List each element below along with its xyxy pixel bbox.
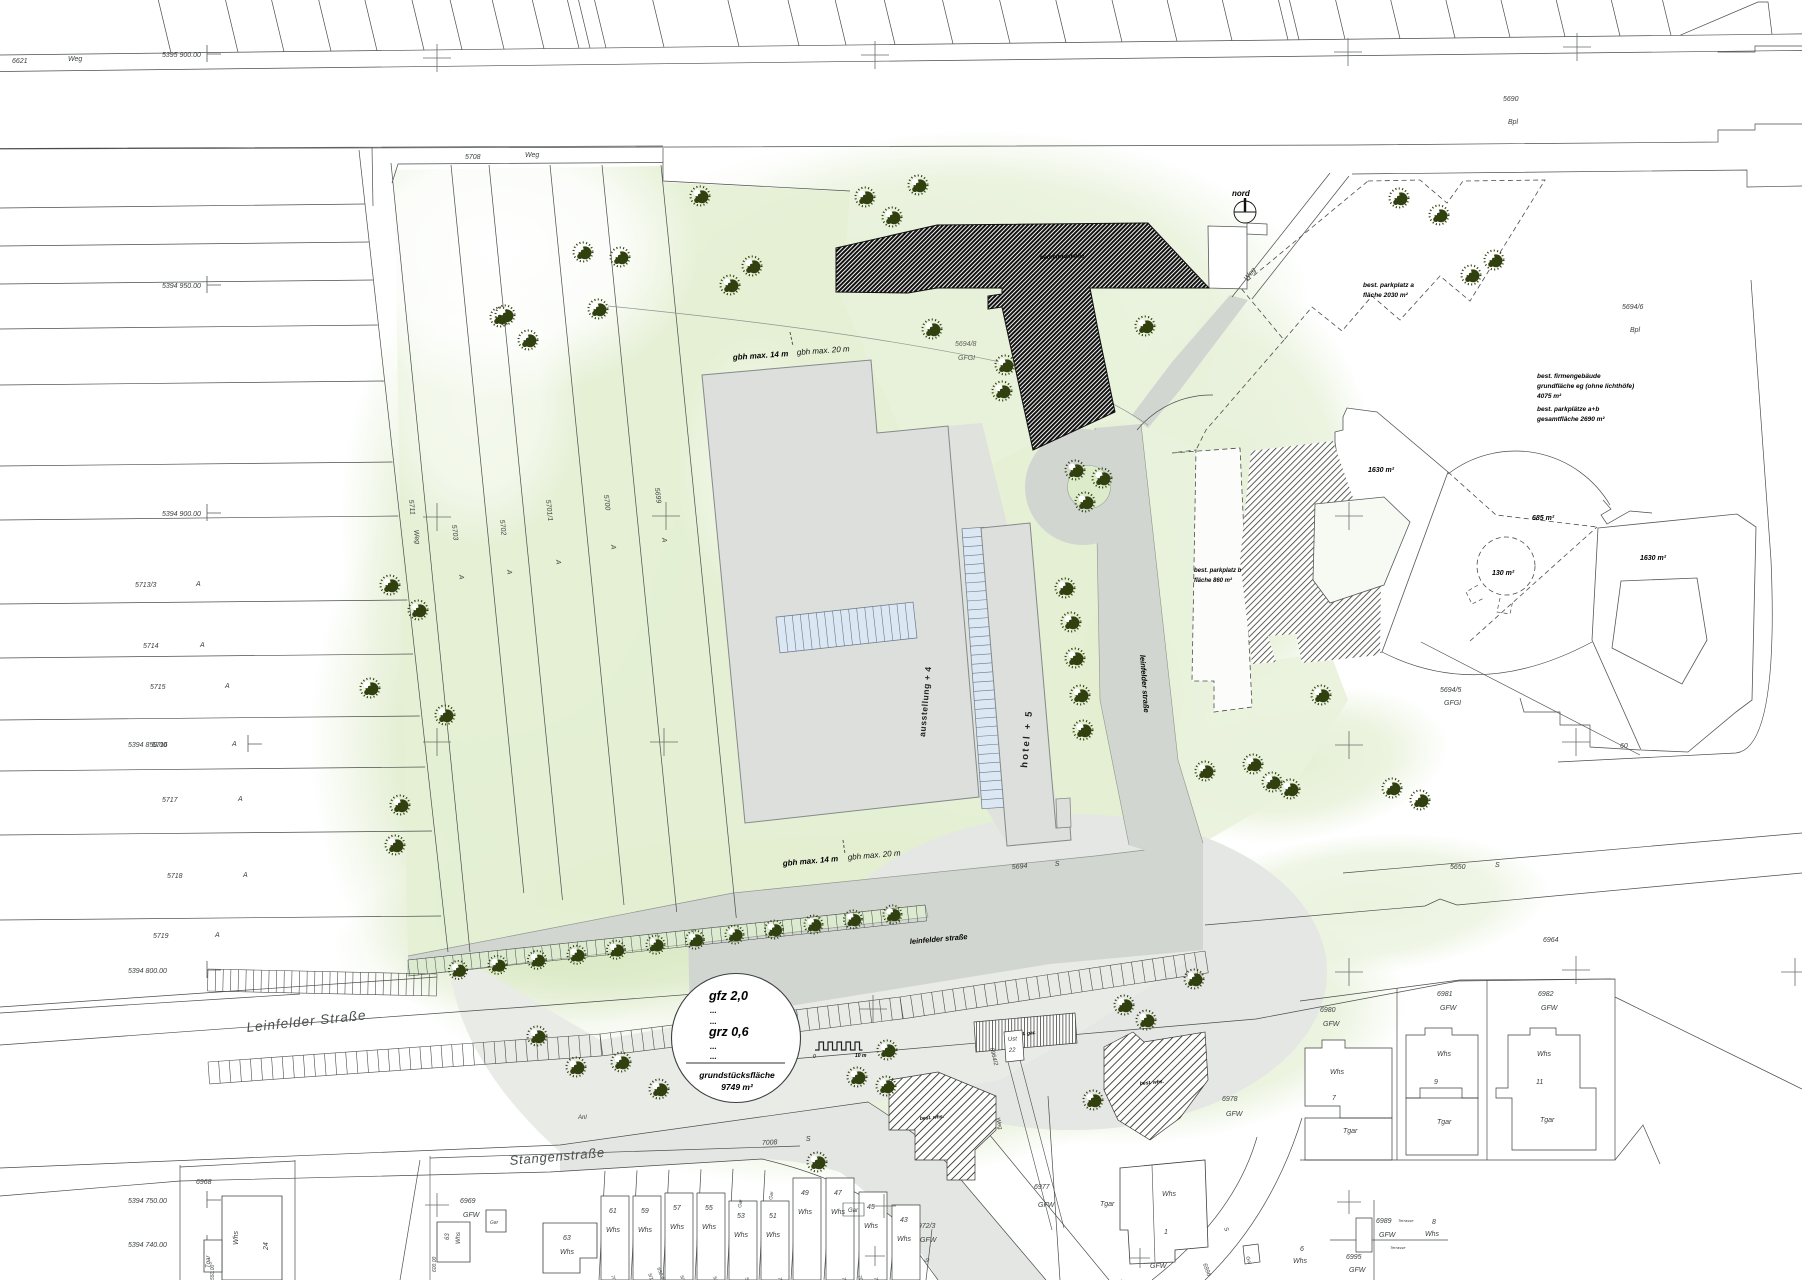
svg-text:grundstücksfläche: grundstücksfläche (698, 1070, 775, 1080)
svg-text:Tgar: Tgar (1343, 1128, 1358, 1135)
svg-text:A: A (195, 581, 201, 588)
svg-text:S: S (806, 1136, 811, 1143)
svg-text:7008: 7008 (762, 1139, 778, 1147)
svg-text:6969: 6969 (460, 1198, 476, 1205)
svg-text:Tgar: Tgar (1540, 1117, 1555, 1124)
svg-text:6982: 6982 (1538, 991, 1554, 998)
svg-text:4075 m²: 4075 m² (1536, 393, 1562, 400)
svg-text:A: A (199, 642, 205, 649)
svg-text:550.00: 550.00 (210, 1264, 216, 1280)
svg-text:1: 1 (1164, 1229, 1168, 1236)
svg-text:GFW: GFW (1349, 1267, 1367, 1274)
svg-text:A: A (554, 558, 562, 565)
svg-text:S: S (1495, 862, 1500, 869)
svg-text:A: A (237, 796, 243, 803)
svg-text:63: 63 (445, 1233, 451, 1240)
svg-text:GFGI: GFGI (958, 355, 975, 362)
svg-text:Whs: Whs (766, 1232, 781, 1239)
svg-text:5694: 5694 (1012, 863, 1028, 871)
svg-text:0: 0 (813, 1054, 816, 1060)
svg-text:Whs: Whs (864, 1223, 879, 1230)
svg-text:A: A (214, 932, 220, 939)
svg-text:GFW: GFW (1541, 1005, 1559, 1012)
svg-text:Anl: Anl (577, 1115, 587, 1121)
svg-text:GFW: GFW (920, 1237, 938, 1244)
svg-text:GFW: GFW (463, 1212, 481, 1219)
svg-text:S: S (1055, 861, 1060, 868)
svg-text:5/3: 5/3 (711, 1276, 719, 1280)
svg-text:5718: 5718 (167, 873, 183, 880)
svg-text:GFW: GFW (1038, 1202, 1056, 1209)
svg-text:Whs: Whs (456, 1232, 462, 1244)
svg-text:Whs: Whs (702, 1224, 717, 1231)
svg-text:63: 63 (563, 1235, 571, 1242)
svg-text:47: 47 (834, 1190, 843, 1197)
svg-text:Terrasse: Terrasse (1398, 1218, 1414, 1223)
svg-text:A: A (457, 573, 465, 580)
svg-text:Gar: Gar (490, 1220, 499, 1226)
svg-text:5713/3: 5713/3 (135, 582, 157, 589)
svg-text:43: 43 (900, 1217, 908, 1224)
svg-text:8: 8 (1432, 1219, 1436, 1226)
svg-text:5717: 5717 (162, 797, 179, 804)
svg-text:...: ... (710, 1052, 717, 1061)
svg-text:6968: 6968 (196, 1179, 212, 1186)
svg-text:5394 900.00: 5394 900.00 (162, 511, 201, 518)
svg-text:A: A (609, 543, 617, 550)
svg-text:Whs: Whs (897, 1236, 912, 1243)
svg-text:Terrasse: Terrasse (1390, 1245, 1406, 1250)
svg-text:Bpl: Bpl (1630, 327, 1641, 334)
svg-text:5395 900.00: 5395 900.00 (162, 52, 201, 59)
svg-text:GFGI: GFGI (1444, 700, 1461, 707)
svg-text:5690: 5690 (1503, 96, 1519, 103)
svg-text:6981: 6981 (1437, 991, 1453, 998)
svg-text:Whs: Whs (1330, 1069, 1345, 1076)
svg-text:5714: 5714 (143, 643, 159, 650)
svg-text:fläche 2030 m²: fläche 2030 m² (1363, 292, 1409, 299)
svg-text:GFW: GFW (1379, 1232, 1397, 1239)
svg-text:Whs: Whs (1437, 1051, 1452, 1058)
svg-text:24: 24 (263, 1242, 270, 1251)
svg-text:6978: 6978 (1222, 1096, 1238, 1103)
svg-text:5/2: 5/2 (678, 1275, 686, 1280)
svg-text:5694/5: 5694/5 (1440, 687, 1462, 694)
svg-text:5715: 5715 (150, 684, 166, 691)
svg-text:1630 m²: 1630 m² (1640, 555, 1667, 562)
svg-text:Ust: Ust (1008, 1036, 1018, 1043)
svg-text:GFW: GFW (1440, 1005, 1458, 1012)
svg-text:gesamtfläche 2690 m²: gesamtfläche 2690 m² (1536, 416, 1605, 423)
svg-text:5694/8: 5694/8 (955, 341, 977, 348)
svg-text:5394 750.00: 5394 750.00 (128, 1198, 167, 1205)
svg-text:GFW: GFW (1150, 1263, 1168, 1270)
svg-text:600.00: 600.00 (432, 1256, 438, 1272)
svg-text:Whs: Whs (233, 1231, 240, 1246)
svg-text:grz 0,6: grz 0,6 (708, 1025, 750, 1039)
svg-text:Whs: Whs (734, 1232, 749, 1239)
svg-text:11: 11 (1536, 1079, 1543, 1086)
svg-text:6995: 6995 (1346, 1254, 1362, 1261)
svg-text:Whs: Whs (1162, 1191, 1177, 1198)
svg-text:5708: 5708 (465, 154, 481, 161)
svg-text:A: A (505, 568, 513, 575)
svg-text:Whs: Whs (1293, 1258, 1308, 1265)
svg-text:130 m²: 130 m² (1492, 570, 1515, 577)
svg-text:A: A (224, 683, 230, 690)
svg-text:Whs: Whs (831, 1209, 846, 1216)
svg-text:nord: nord (1232, 189, 1251, 198)
svg-text:best. firmengebäude: best. firmengebäude (1537, 373, 1601, 380)
svg-text:Whs: Whs (560, 1249, 575, 1256)
svg-text:5394 850.00: 5394 850.00 (128, 742, 167, 749)
svg-text:22: 22 (1008, 1047, 1017, 1054)
svg-text:Whs: Whs (1425, 1231, 1440, 1238)
svg-text:5394 950.00: 5394 950.00 (162, 283, 201, 290)
svg-text:6: 6 (1300, 1246, 1304, 1253)
svg-text:49: 49 (801, 1190, 809, 1197)
svg-text:gfz 2,0: gfz 2,0 (708, 989, 748, 1003)
svg-text:60: 60 (1620, 743, 1628, 750)
svg-text:7/1: 7/1 (609, 1275, 617, 1280)
svg-text:5719: 5719 (153, 933, 169, 940)
svg-text:Whs: Whs (638, 1227, 653, 1234)
svg-text:A: A (242, 872, 248, 879)
svg-text:best. parkplatz a: best. parkplatz a (1363, 282, 1414, 289)
svg-text:9749 m²: 9749 m² (721, 1082, 754, 1092)
svg-text:6977: 6977 (1034, 1184, 1051, 1191)
svg-text:59: 59 (641, 1208, 649, 1215)
svg-text:GFW: GFW (1226, 1111, 1244, 1118)
svg-text:Weg: Weg (68, 56, 82, 63)
svg-text:57: 57 (673, 1205, 682, 1212)
svg-text:5394 800.00: 5394 800.00 (128, 968, 167, 975)
svg-text:Whs: Whs (1537, 1051, 1552, 1058)
svg-text:6964: 6964 (1543, 937, 1559, 944)
svg-text:6621: 6621 (12, 58, 28, 65)
svg-text:...: ... (710, 1006, 717, 1015)
svg-text:Weg: Weg (525, 152, 539, 159)
svg-text:45: 45 (867, 1204, 875, 1211)
svg-text:Bpl: Bpl (1508, 119, 1519, 126)
svg-text:9: 9 (1434, 1079, 1438, 1086)
svg-text:1630 m²: 1630 m² (1368, 467, 1395, 474)
svg-text:Whs: Whs (670, 1224, 685, 1231)
svg-text:Gar: Gar (848, 1208, 859, 1214)
svg-text:6989: 6989 (1376, 1218, 1392, 1225)
svg-text:grundfläche eg (ohne lichthöfe: grundfläche eg (ohne lichthöfe) (1536, 383, 1634, 390)
svg-text:Tgar: Tgar (1100, 1201, 1115, 1208)
svg-text:best. parkplatz b: best. parkplatz b (1194, 568, 1242, 574)
svg-text:Whs: Whs (798, 1209, 813, 1216)
svg-text:51: 51 (769, 1213, 777, 1220)
svg-text:6980: 6980 (1320, 1007, 1336, 1014)
svg-text:61: 61 (609, 1208, 617, 1215)
svg-text:fläche 860 m²: fläche 860 m² (1194, 577, 1233, 584)
svg-text:5694/6: 5694/6 (1622, 304, 1644, 311)
svg-text:A: A (660, 536, 668, 543)
svg-text:Tgar: Tgar (1437, 1119, 1452, 1126)
svg-text:5650: 5650 (1450, 864, 1466, 871)
svg-text:best. parkplätze a+b: best. parkplätze a+b (1537, 406, 1599, 413)
svg-text:Whs: Whs (606, 1227, 621, 1234)
svg-text:5394 740.00: 5394 740.00 (128, 1242, 167, 1249)
svg-text:10 m: 10 m (855, 1053, 867, 1059)
svg-text:A: A (231, 741, 237, 748)
svg-text:685 m²: 685 m² (1532, 515, 1555, 522)
svg-text:GFW: GFW (1323, 1021, 1341, 1028)
svg-text:...: ... (710, 1042, 717, 1051)
svg-text:53: 53 (737, 1213, 745, 1220)
svg-text:Weg: Weg (412, 529, 420, 544)
svg-text:55: 55 (705, 1205, 713, 1212)
